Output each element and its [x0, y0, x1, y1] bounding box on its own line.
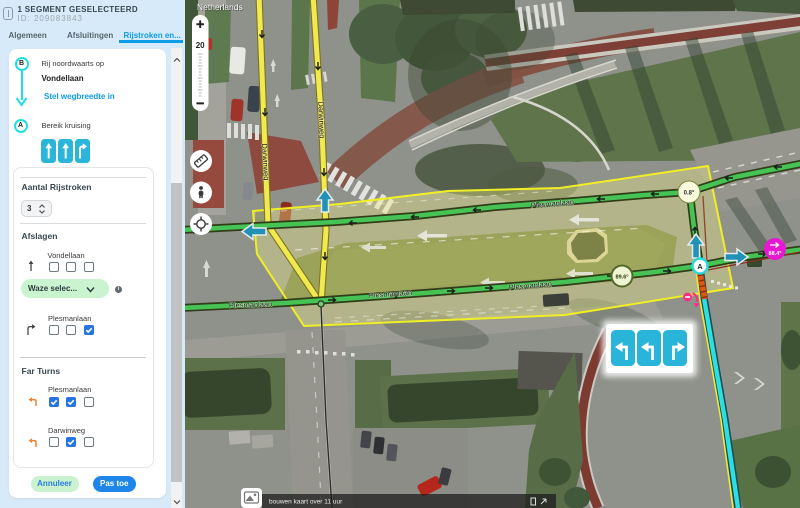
- svg-text:20: 20: [196, 41, 205, 50]
- svg-text:Darwinweg: Darwinweg: [316, 101, 326, 138]
- svg-text:bouwen kaart over 11 uur: bouwen kaart over 11 uur: [269, 499, 343, 506]
- svg-text:Netherlands: Netherlands: [197, 2, 243, 12]
- svg-text:89.6°: 89.6°: [616, 275, 629, 281]
- svg-text:88.4°: 88.4°: [769, 251, 782, 257]
- svg-text:A: A: [697, 262, 703, 271]
- svg-text:0.8°: 0.8°: [684, 191, 695, 197]
- svg-text:Plesmanlaan: Plesmanlaan: [229, 299, 273, 310]
